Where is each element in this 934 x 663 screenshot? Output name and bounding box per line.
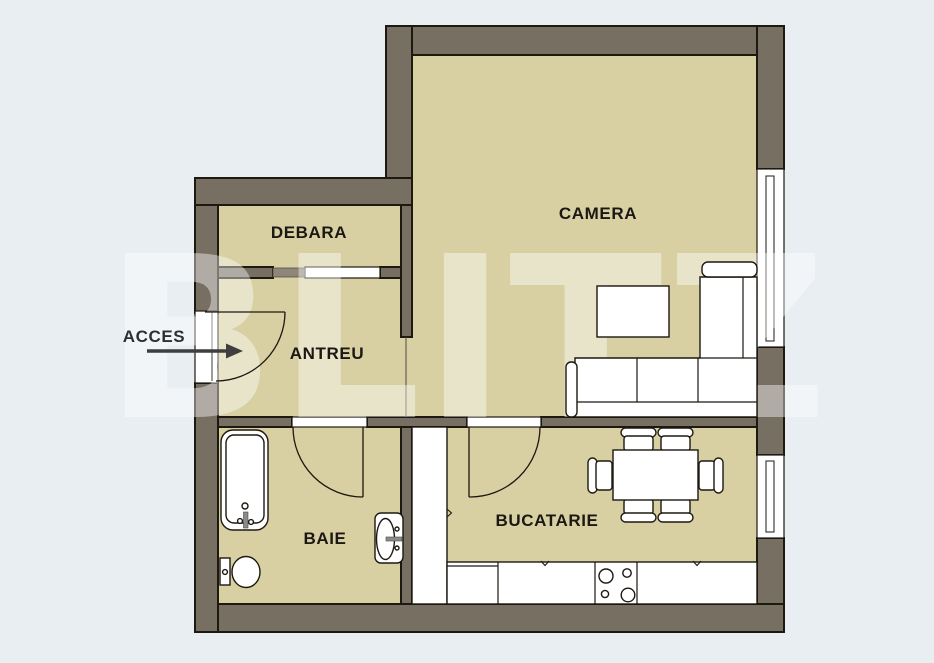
sink-tap-top [395,527,399,531]
bathtub-tap-left [238,519,243,524]
sofa-back-cushion [702,262,757,277]
room-label-bucatarie: BUCATARIE [496,511,599,531]
camera-furniture [566,262,757,417]
bathtub-faucet [244,512,249,528]
room-label-camera: CAMERA [559,204,637,224]
bathtub-inner [226,435,264,523]
baie-fixtures [220,430,403,588]
room-label-antreu: ANTREU [290,344,364,364]
chair-bottom-right-back [658,513,693,522]
stove-burner-2 [623,569,631,577]
room-label-baie: BAIE [303,529,346,549]
floor-plan: BLITZ [0,0,934,663]
chair-right-back [714,458,723,493]
room-label-debara: DEBARA [271,223,347,243]
bathtub-tap-right [249,520,254,525]
chair-bottom-left-back [621,513,656,522]
toilet-bowl [232,557,260,588]
chair-top-right-seat [661,436,690,451]
chair-bottom-right-seat [661,499,690,514]
access-arrow-head [226,344,243,359]
stove-burner-1 [599,569,613,583]
stove-burner-4 [621,588,635,602]
baie-door-arc [293,427,363,497]
sink-tap-bottom [395,546,399,550]
entrance-label: ACCES [123,327,186,347]
toilet-flush-button [223,570,228,575]
kitchen-counter [447,562,757,604]
bathtub-drain [242,503,248,509]
stove-burner-3 [601,590,608,597]
chair-top-left-seat [624,436,653,451]
chair-bottom-left-seat [624,499,653,514]
coffee-table [597,286,669,337]
sink-faucet [386,537,402,541]
dining-table [613,450,698,500]
chair-right-seat [699,461,715,490]
tall-cabinet [412,427,447,604]
bucatarie-door-arc [469,427,540,497]
sofa-armrest [566,362,577,417]
chair-left-seat [596,461,612,490]
